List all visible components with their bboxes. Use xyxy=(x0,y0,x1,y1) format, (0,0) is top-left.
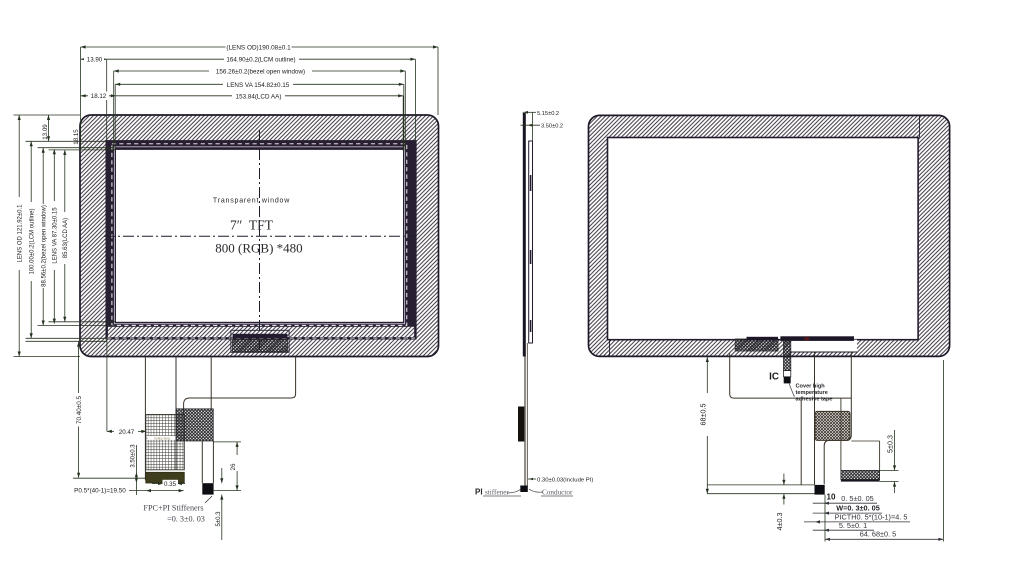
svg-text:13.90: 13.90 xyxy=(87,57,103,64)
svg-text:Cover high: Cover high xyxy=(796,384,826,390)
svg-text:153.84(LCD AA): 153.84(LCD AA) xyxy=(236,93,282,100)
svg-text:FPC+PI Stiffeners: FPC+PI Stiffeners xyxy=(143,504,203,513)
svg-text:100.00±0.2(LCM outline): 100.00±0.2(LCM outline) xyxy=(29,209,35,275)
svg-text:0.35: 0.35 xyxy=(164,481,177,488)
svg-text:0.30±0.03(Include PI): 0.30±0.03(Include PI) xyxy=(537,477,593,483)
svg-text:64. 68±0. 5: 64. 68±0. 5 xyxy=(860,529,896,538)
svg-text:88.56±0.2(bezel open window): 88.56±0.2(bezel open window) xyxy=(41,205,47,287)
svg-text:=0. 3±0. 03: =0. 3±0. 03 xyxy=(167,515,205,524)
svg-text:5±0.3: 5±0.3 xyxy=(885,435,894,453)
svg-text:85.63(LCD AA): 85.63(LCD AA) xyxy=(63,218,69,258)
svg-text:3.50±0.3: 3.50±0.3 xyxy=(131,444,137,468)
svg-text:5.15±0.2: 5.15±0.2 xyxy=(537,111,559,117)
svg-text:LENS VA 87.30±0.15: LENS VA 87.30±0.15 xyxy=(53,207,59,264)
svg-text:(LENS OD)190.08±0.1: (LENS OD)190.08±0.1 xyxy=(226,44,291,51)
svg-text:5±0.3: 5±0.3 xyxy=(216,511,222,527)
svg-text:156.26±0.2(bezel open window): 156.26±0.2(bezel open window) xyxy=(216,68,305,75)
svg-text:800 (RGB) *480: 800 (RGB) *480 xyxy=(215,241,302,256)
svg-text:adhesive tape: adhesive tape xyxy=(796,397,833,403)
svg-text:IC: IC xyxy=(769,372,779,383)
svg-text:18.12: 18.12 xyxy=(91,93,107,100)
svg-text:4±0.3: 4±0.3 xyxy=(775,513,784,531)
svg-text:Transparent window: Transparent window xyxy=(213,197,290,204)
svg-text:68±0.5: 68±0.5 xyxy=(698,404,707,426)
svg-text:7″ TFT: 7″ TFT xyxy=(230,218,274,233)
svg-text:W=0. 3±0. 05: W=0. 3±0. 05 xyxy=(836,504,880,513)
svg-text:3.50±0.2: 3.50±0.2 xyxy=(541,124,563,130)
svg-text:temperature: temperature xyxy=(796,390,828,396)
svg-text:0. 5±0. 05: 0. 5±0. 05 xyxy=(841,494,873,503)
svg-text:LENS VA 154.82±0.15: LENS VA 154.82±0.15 xyxy=(227,82,290,89)
svg-text:Conductor: Conductor xyxy=(542,489,573,497)
svg-text:P0.5*(40-1)=19.50: P0.5*(40-1)=19.50 xyxy=(74,488,126,495)
svg-text:20.47: 20.47 xyxy=(119,429,135,436)
svg-text:26: 26 xyxy=(230,463,237,471)
svg-text:70.40±0.5: 70.40±0.5 xyxy=(76,396,83,424)
svg-text:10: 10 xyxy=(827,493,836,502)
svg-text:PI: PI xyxy=(475,488,483,497)
svg-text:hstky dwg: hstky dwg xyxy=(154,436,170,440)
svg-text:18.15: 18.15 xyxy=(73,129,80,145)
svg-text:164.90±0.2(LCM outline): 164.90±0.2(LCM outline) xyxy=(226,57,295,64)
svg-text:stiffener: stiffener xyxy=(485,489,509,497)
svg-text:13.09: 13.09 xyxy=(42,124,49,140)
svg-text:LENS OD 121.92±0.1: LENS OD 121.92±0.1 xyxy=(17,204,23,263)
